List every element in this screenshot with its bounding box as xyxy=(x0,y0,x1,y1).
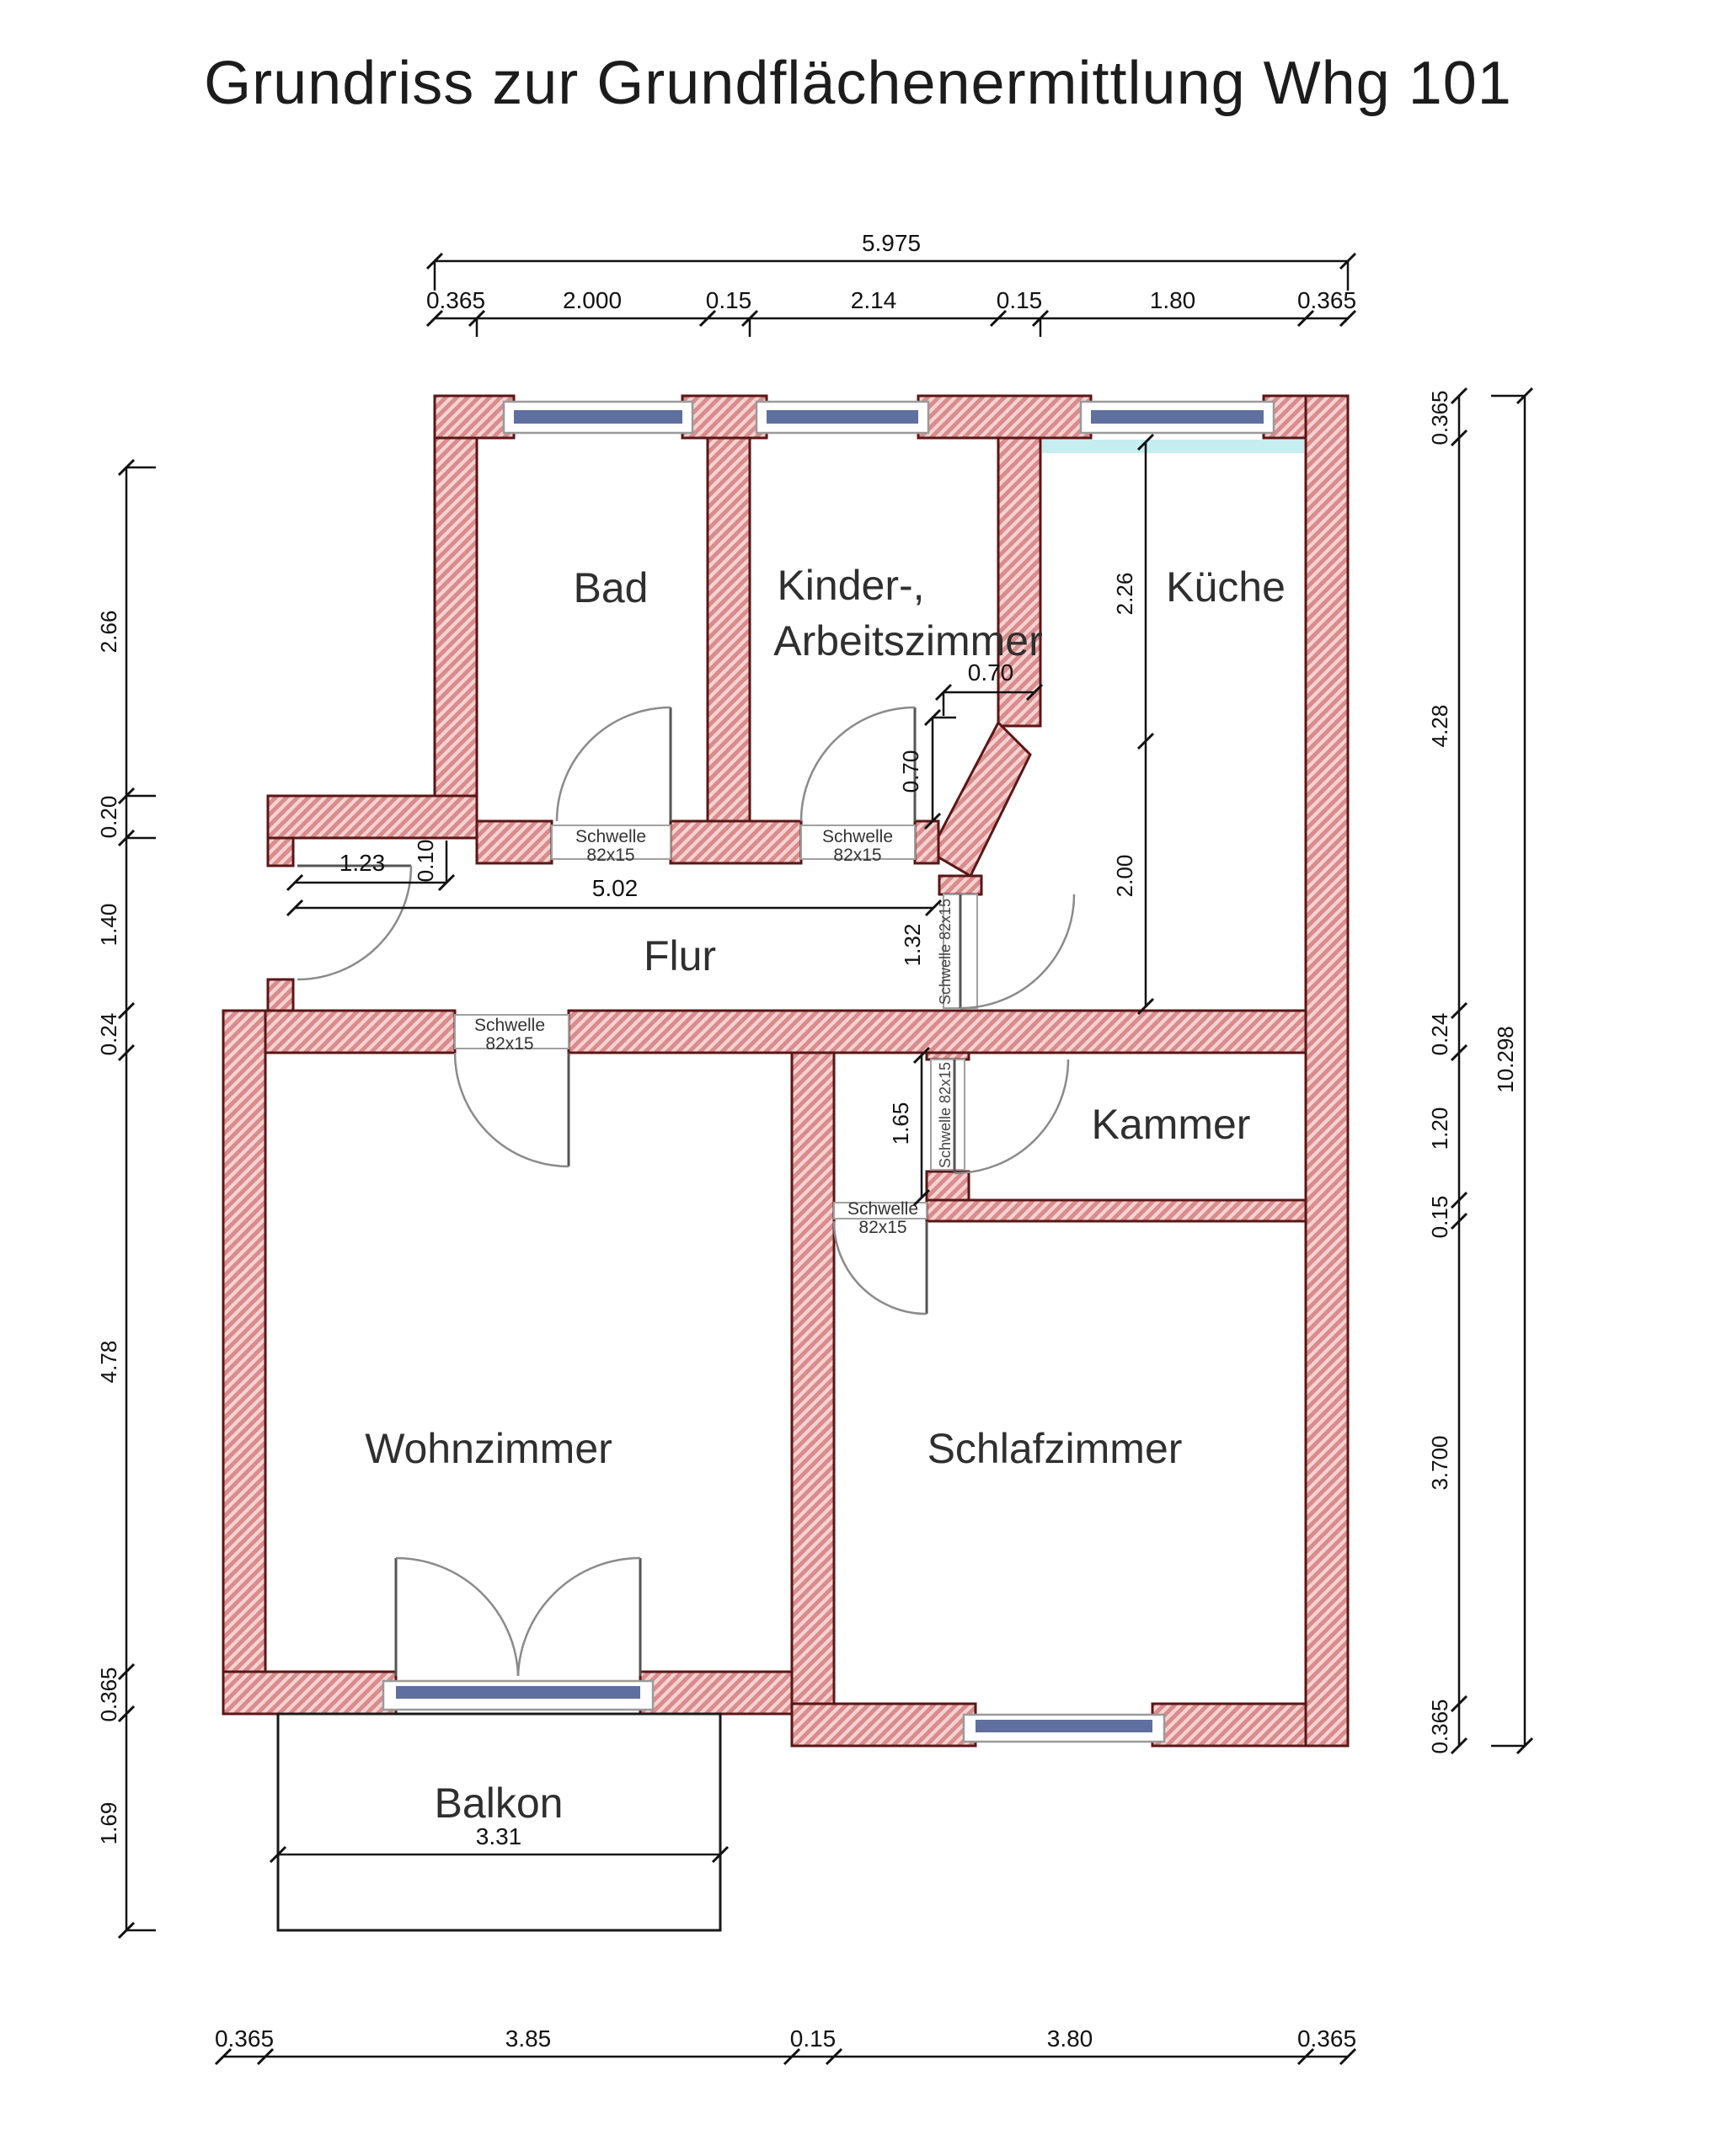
floorplan: Bad Kinder-, Arbeitszimmer Küche Flur Ka… xyxy=(0,0,1716,2156)
dim-kueche-upper: 2.26 xyxy=(1112,573,1137,616)
dim-top-2: 0.15 xyxy=(706,287,752,313)
dim-entry-width: 1.23 xyxy=(339,850,386,876)
dim-chamfer-w: 0.70 xyxy=(968,659,1014,686)
dim-bottom-0: 0.365 xyxy=(215,2025,274,2052)
dim-top-3: 2.14 xyxy=(851,287,897,313)
schwelle-kueche-door: Schwelle 82x15 xyxy=(937,899,954,1005)
dim-top-total: 5.975 xyxy=(862,230,921,256)
dim-kueche-lower: 2.00 xyxy=(1112,855,1137,898)
schwelle-kinder: Schwelle xyxy=(822,827,893,846)
window-schlafzimmer xyxy=(964,1715,1164,1742)
schwelle-schlafzimmer-size: 82x15 xyxy=(858,1218,906,1237)
schwelle-bad-size: 82x15 xyxy=(586,846,634,865)
dim-right-6: 0.365 xyxy=(1427,1699,1452,1753)
dim-bottom: 0.365 3.85 0.15 3.80 0.365 xyxy=(215,2025,1356,2064)
dim-left: 2.66 0.20 1.40 0.24 4.78 0.365 1.69 xyxy=(96,460,156,1938)
dim-right-total: 10.298 xyxy=(1493,1026,1518,1093)
dim-bottom-3: 3.80 xyxy=(1047,2025,1093,2052)
window-kueche xyxy=(1081,402,1274,433)
window-bad xyxy=(504,402,692,433)
kueche-sill xyxy=(1042,440,1304,453)
schwelle-bad: Schwelle xyxy=(575,827,646,846)
door-bad xyxy=(557,707,671,821)
dim-left-2: 1.40 xyxy=(96,904,121,947)
dim-right-5: 3.700 xyxy=(1427,1435,1452,1490)
schwelle-kinder-size: 82x15 xyxy=(833,846,881,865)
dim-lobby: 1.65 xyxy=(888,1102,913,1145)
dim-entry-jamb: 0.10 xyxy=(413,840,438,883)
room-label-kammer: Kammer xyxy=(1092,1101,1251,1148)
dim-bottom-1: 3.85 xyxy=(505,2025,552,2052)
dim-top-5: 1.80 xyxy=(1150,287,1196,313)
room-label-wohnzimmer: Wohnzimmer xyxy=(365,1425,612,1472)
door-kammer xyxy=(954,1059,1068,1173)
dim-right: 0.365 4.28 0.24 1.20 0.15 3.700 0.365 10… xyxy=(1427,388,1532,1754)
schwelle-wohnzimmer-size: 82x15 xyxy=(485,1034,533,1054)
dim-top-4: 0.15 xyxy=(997,287,1043,313)
dim-left-6: 1.69 xyxy=(96,1802,121,1845)
room-label-kinder-2: Arbeitszimmer xyxy=(773,617,1042,664)
room-label-flur: Flur xyxy=(644,932,716,979)
dim-left-4: 4.78 xyxy=(96,1341,121,1384)
schwelle-schlafzimmer: Schwelle xyxy=(847,1199,918,1219)
dim-top-1: 2.000 xyxy=(563,287,622,313)
dim-right-3: 1.20 xyxy=(1427,1107,1452,1150)
dim-balkon-width: 3.31 xyxy=(476,1823,522,1849)
door-wohnzimmer xyxy=(455,1053,569,1166)
door-balkon-french xyxy=(396,1558,640,1676)
dim-left-3: 0.24 xyxy=(96,1013,121,1056)
dim-top-0: 0.365 xyxy=(426,287,485,313)
dim-top: 5.975 0.365 2.000 0.15 2.14 0.15 1.80 0.… xyxy=(426,230,1356,337)
dim-bottom-4: 0.365 xyxy=(1297,2025,1356,2052)
dim-left-1: 0.20 xyxy=(96,796,121,839)
dim-left-0: 2.66 xyxy=(96,611,121,654)
room-label-kinder-1: Kinder-, xyxy=(777,562,924,609)
dim-right-4: 0.15 xyxy=(1427,1196,1452,1239)
dim-right-2: 0.24 xyxy=(1427,1013,1452,1056)
dim-right-0: 0.365 xyxy=(1427,390,1452,445)
dim-chamfer-h: 0.70 xyxy=(898,750,923,793)
room-label-schlafzimmer: Schlafzimmer xyxy=(927,1425,1183,1472)
room-label-bad: Bad xyxy=(574,564,649,611)
window-kinderzimmer xyxy=(756,402,928,433)
dim-bottom-2: 0.15 xyxy=(790,2025,837,2052)
room-label-balkon: Balkon xyxy=(435,1780,564,1827)
schwelle-kammer-door: Schwelle 82x15 xyxy=(937,1062,954,1168)
dim-top-6: 0.365 xyxy=(1297,287,1356,313)
dim-left-5: 0.365 xyxy=(96,1667,121,1721)
dim-flur-end: 1.32 xyxy=(900,924,925,967)
dim-right-1: 4.28 xyxy=(1427,705,1452,748)
dim-flur-length: 5.02 xyxy=(592,875,639,901)
schwelle-wohnzimmer: Schwelle xyxy=(474,1016,545,1035)
window-balkon-door xyxy=(383,1681,653,1710)
room-label-kueche: Küche xyxy=(1166,563,1286,611)
